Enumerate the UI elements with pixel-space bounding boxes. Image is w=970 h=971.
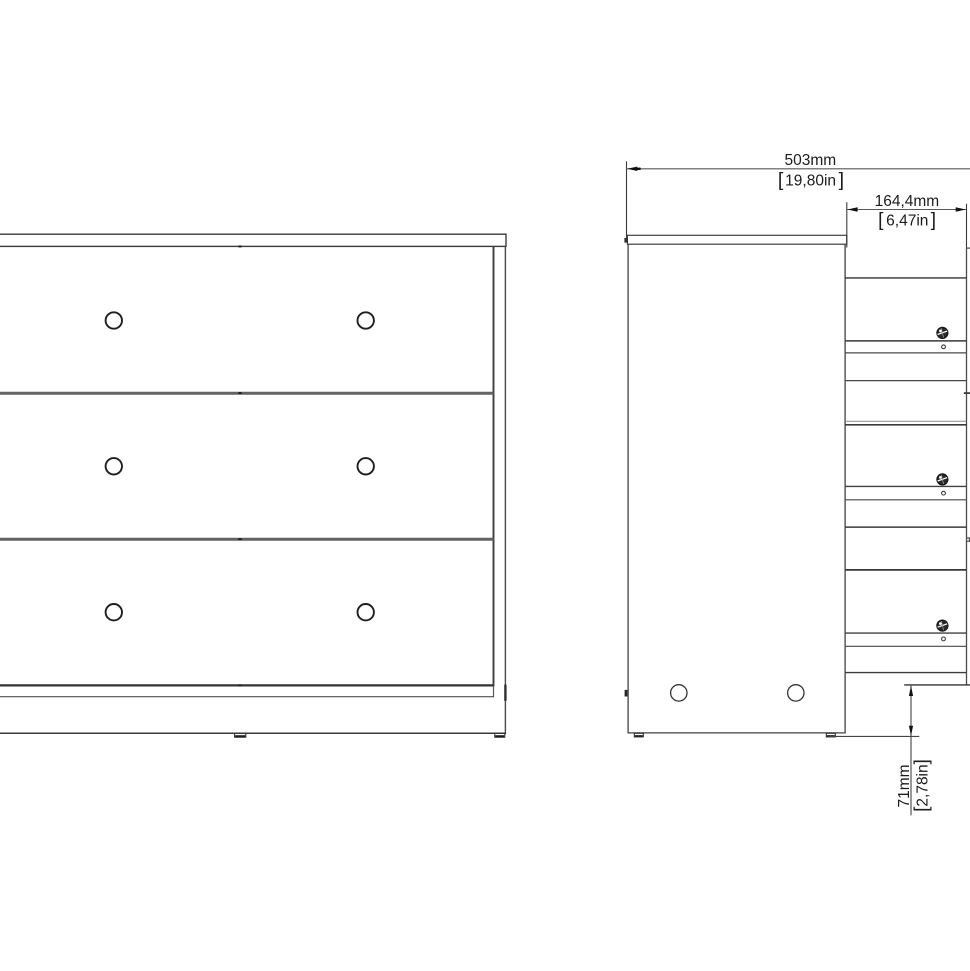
- svg-text:[: [: [778, 169, 784, 191]
- svg-text:6,47in: 6,47in: [886, 213, 928, 230]
- svg-text:[2,78in]: [2,78in]: [912, 759, 933, 812]
- svg-text:]: ]: [931, 210, 936, 231]
- svg-text:[: [: [878, 210, 884, 231]
- svg-text:71mm: 71mm: [896, 764, 913, 807]
- svg-text:19,80in: 19,80in: [785, 173, 836, 190]
- svg-text:503mm: 503mm: [784, 152, 836, 169]
- svg-text:164,4mm: 164,4mm: [875, 193, 940, 210]
- svg-text:]: ]: [839, 169, 844, 191]
